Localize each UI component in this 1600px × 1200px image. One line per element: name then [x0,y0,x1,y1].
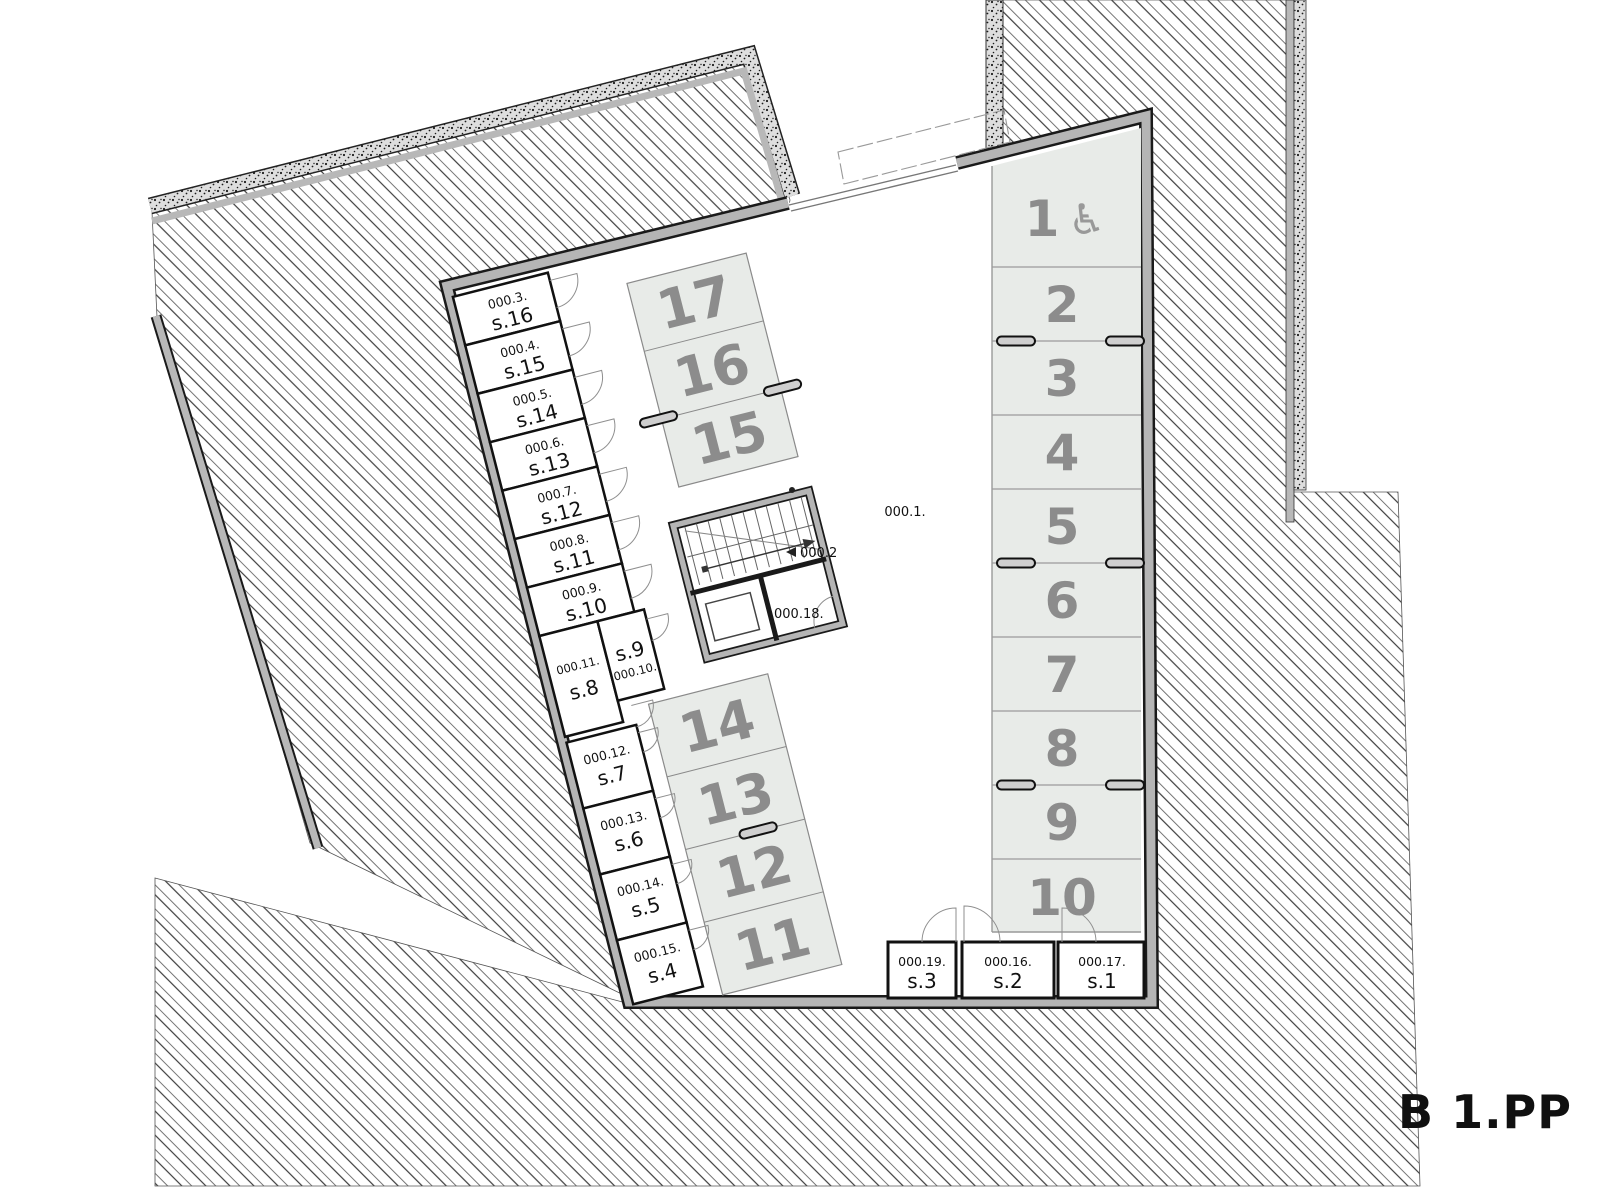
stairs-marker-dot [789,487,795,493]
room-s1-code: 000.17. [1078,954,1126,969]
parking-spot-2: 2 [1045,276,1080,334]
room-s2-code: 000.16. [984,954,1032,969]
room-s3-code: 000.19. [898,954,946,969]
room-s3-name: s.3 [907,969,937,993]
utility-area-label: 000.18. [774,607,824,622]
site-wall-gray-b [1286,0,1294,522]
sheet-title: B 1.PP [1398,1085,1572,1139]
stair-core [673,491,843,658]
site-wall-stipple-b [1294,0,1306,490]
parking-spot-4: 4 [1045,424,1080,482]
parking-spot-6: 6 [1045,572,1080,630]
garage-area-label: 000.1. [884,505,925,520]
room-s2-name: s.2 [993,969,1023,993]
wheelchair-icon: ♿ [1068,195,1106,244]
floor-plan-drawing: 17 16 15 14 13 12 11 [0,0,1600,1200]
parking-spot-9: 9 [1045,794,1080,852]
stairs-area-label: 000.2 [800,546,837,561]
floor-plan-page: 17 16 15 14 13 12 11 [0,0,1600,1200]
parking-spot-5: 5 [1045,498,1080,556]
parking-spot-1: 1 [1025,190,1060,248]
site-wall-stipple-a [986,0,1003,158]
parking-spot-8: 8 [1045,720,1080,778]
room-s1-name: s.1 [1087,969,1117,993]
parking-spot-7: 7 [1045,646,1080,704]
parking-column-right: 1 ♿ 2 3 4 5 6 7 8 9 10 [992,128,1144,932]
parking-spot-3: 3 [1045,350,1080,408]
